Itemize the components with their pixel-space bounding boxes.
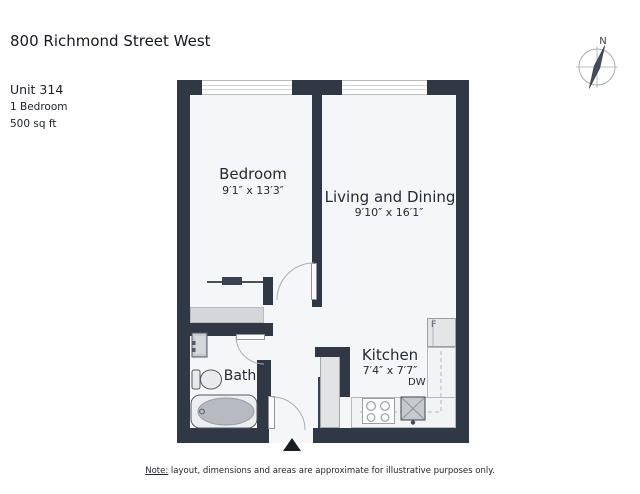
footnote-prefix: Note: bbox=[145, 466, 168, 476]
room-label-living: Living and Dining bbox=[325, 188, 456, 206]
bath-door-arc bbox=[236, 337, 264, 364]
vanity-handle-icon bbox=[193, 341, 196, 345]
bedroom-door-arc bbox=[277, 263, 314, 300]
bath-vanity-basin bbox=[195, 336, 205, 354]
sink-faucet-icon bbox=[411, 420, 415, 424]
footnote-text: layout, dimensions and areas are approxi… bbox=[168, 466, 495, 476]
room-label-bath: Bath bbox=[224, 368, 257, 384]
north-label: N bbox=[599, 36, 606, 47]
toilet-tank bbox=[192, 370, 200, 389]
footnote: Note: layout, dimensions and areas are a… bbox=[0, 466, 640, 476]
bathtub-basin bbox=[198, 398, 254, 425]
room-dims-bedroom: 9′1″ x 13′3″ bbox=[222, 184, 284, 197]
toilet-bowl bbox=[201, 370, 222, 389]
plan-overlay: N bbox=[0, 0, 640, 494]
room-label-bedroom: Bedroom bbox=[219, 165, 287, 183]
compass: N bbox=[576, 36, 618, 90]
room-dims-kitchen: 7′4″ x 7′7″ bbox=[363, 364, 418, 377]
dishwasher-label: DW bbox=[408, 377, 426, 388]
room-dims-living: 9′10″ x 16′1″ bbox=[355, 206, 424, 219]
vanity-handle-icon bbox=[193, 348, 196, 352]
entry-arrow-icon bbox=[283, 438, 301, 451]
room-label-kitchen: Kitchen bbox=[362, 346, 418, 364]
entry-door-arc bbox=[272, 397, 305, 430]
floorplan-page: 800 Richmond Street West Unit 314 1 Bedr… bbox=[0, 0, 640, 494]
